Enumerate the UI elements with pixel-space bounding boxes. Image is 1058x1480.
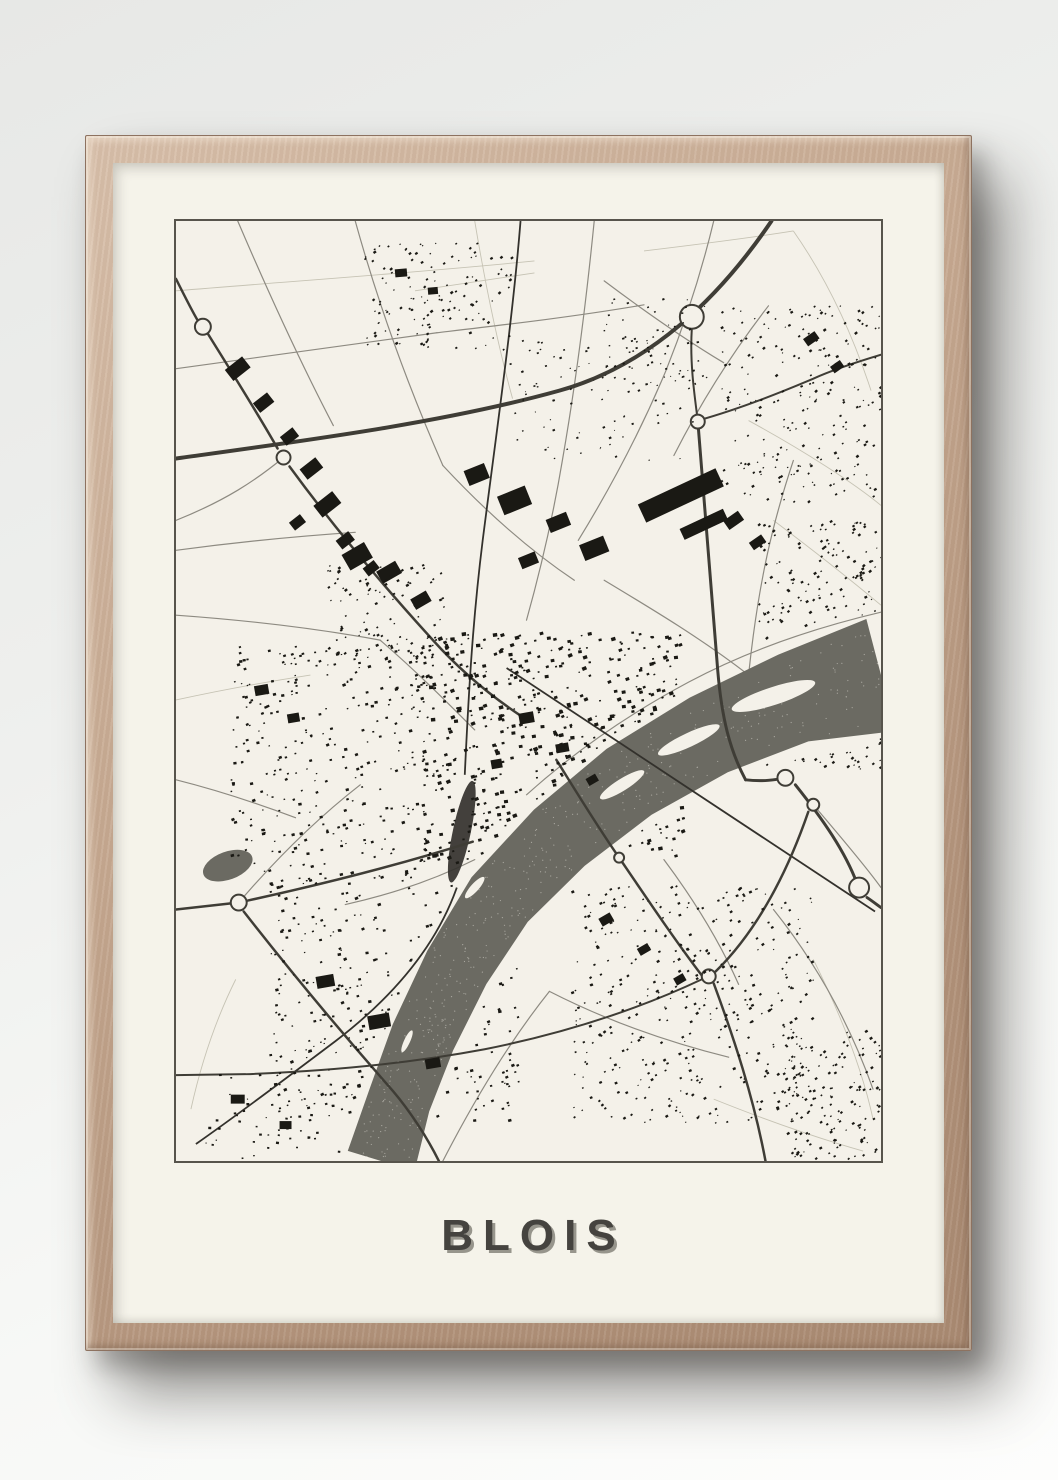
roundabout bbox=[680, 305, 704, 329]
city-map-svg bbox=[176, 221, 881, 1161]
wall-background: BLOIS bbox=[0, 0, 1058, 1480]
roundabout bbox=[231, 895, 247, 911]
roundabout bbox=[777, 770, 793, 786]
roundabout bbox=[277, 451, 291, 465]
poster-mat: BLOIS bbox=[113, 163, 944, 1323]
roundabout bbox=[849, 878, 869, 898]
roundabout bbox=[195, 319, 211, 335]
poster-title: BLOIS bbox=[431, 1211, 625, 1261]
poster-frame: BLOIS bbox=[85, 135, 972, 1351]
roundabout bbox=[807, 799, 819, 811]
title-area: BLOIS bbox=[113, 1163, 944, 1323]
roundabout bbox=[614, 853, 624, 863]
map-panel bbox=[174, 219, 883, 1163]
